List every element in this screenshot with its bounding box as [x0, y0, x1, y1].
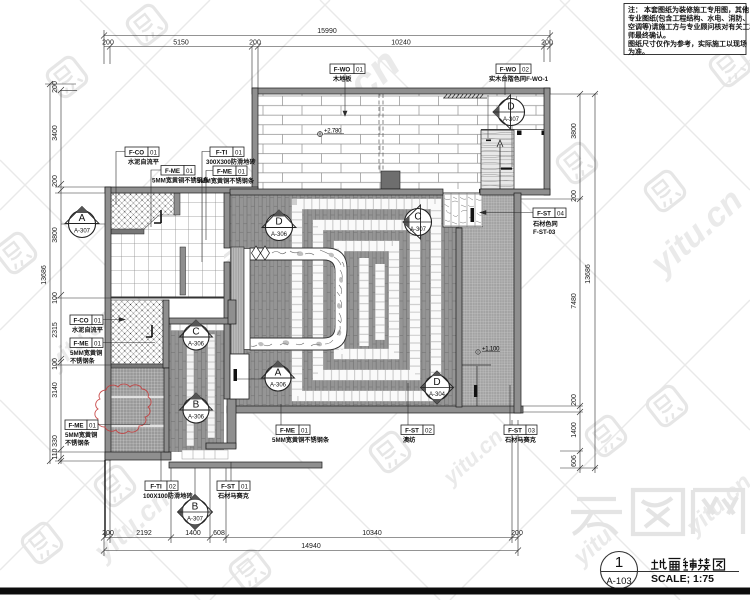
- svg-text:A-307: A-307: [503, 117, 520, 123]
- svg-text:01: 01: [238, 169, 245, 176]
- svg-text:200: 200: [571, 394, 578, 406]
- svg-text:A-307: A-307: [74, 229, 91, 235]
- svg-text:F-TI: F-TI: [216, 150, 228, 157]
- svg-text:5150: 5150: [173, 40, 189, 47]
- svg-text:D: D: [433, 377, 440, 388]
- svg-text:13686: 13686: [41, 265, 48, 285]
- svg-text:200: 200: [102, 40, 114, 47]
- svg-text:200: 200: [571, 190, 578, 202]
- svg-text:A-307: A-307: [187, 517, 204, 523]
- svg-text:03: 03: [528, 428, 535, 435]
- svg-text:200: 200: [52, 81, 59, 93]
- svg-text:B: B: [193, 400, 200, 411]
- svg-text:5MM宽黄铜: 5MM宽黄铜: [65, 431, 97, 439]
- svg-text:200: 200: [511, 530, 523, 537]
- svg-text:木地板: 木地板: [332, 75, 352, 83]
- svg-text:F-ME: F-ME: [165, 168, 180, 175]
- svg-text:师最终确认。: 师最终确认。: [628, 31, 670, 40]
- svg-text:606: 606: [571, 455, 578, 467]
- svg-text:F-ST: F-ST: [221, 484, 235, 491]
- svg-text:10240: 10240: [391, 40, 411, 47]
- svg-text:14940: 14940: [301, 543, 321, 550]
- svg-text:3140: 3140: [52, 382, 59, 398]
- svg-text:01: 01: [150, 150, 157, 157]
- svg-text:F-ME: F-ME: [280, 428, 295, 435]
- svg-text:F-WO: F-WO: [334, 67, 351, 74]
- svg-text:2192: 2192: [136, 530, 152, 537]
- svg-text:13686: 13686: [585, 264, 592, 284]
- svg-text:300X300防滑地砖: 300X300防滑地砖: [206, 158, 256, 166]
- svg-text:B: B: [192, 502, 199, 513]
- svg-text:5MM宽黄铜不锈钢条: 5MM宽黄铜不锈钢条: [197, 177, 255, 185]
- svg-text:石材马赛克: 石材马赛克: [504, 436, 537, 444]
- svg-text:F-CO: F-CO: [129, 150, 144, 157]
- svg-text:A-306: A-306: [271, 232, 288, 238]
- svg-text:实木台階色同F-WO-1: 实木台階色同F-WO-1: [489, 75, 549, 83]
- svg-text:F-CO: F-CO: [73, 318, 88, 325]
- svg-text:专业图纸(包含工程结构、水电、消防、: 专业图纸(包含工程结构、水电、消防、: [628, 14, 749, 23]
- svg-text:A-306: A-306: [188, 415, 205, 421]
- svg-text:04: 04: [557, 211, 564, 218]
- svg-text:01: 01: [94, 318, 101, 325]
- svg-text:C: C: [414, 212, 421, 223]
- svg-text:为准。: 为准。: [628, 47, 649, 56]
- svg-text:石材色同: 石材色同: [532, 220, 558, 228]
- svg-text:7480: 7480: [571, 293, 578, 309]
- svg-text:F-ST: F-ST: [537, 211, 551, 218]
- svg-text:100: 100: [52, 358, 59, 370]
- svg-text:330: 330: [52, 435, 59, 447]
- svg-text:5MM宽黄铜不锈钢条: 5MM宽黄铜不锈钢条: [272, 436, 330, 444]
- svg-text:F-ST-03: F-ST-03: [533, 229, 556, 236]
- svg-text:F-ST: F-ST: [405, 428, 419, 435]
- svg-text:不锈钢条: 不锈钢条: [65, 439, 91, 447]
- svg-text:01: 01: [235, 150, 242, 157]
- svg-text:F-ME: F-ME: [68, 423, 83, 430]
- svg-text:2315: 2315: [52, 322, 59, 338]
- svg-text:200: 200: [52, 175, 59, 187]
- svg-text:3800: 3800: [52, 227, 59, 243]
- svg-text:01: 01: [301, 428, 308, 435]
- svg-text:1400: 1400: [571, 422, 578, 438]
- svg-text:水泥自流平: 水泥自流平: [72, 326, 104, 334]
- svg-text:10340: 10340: [362, 530, 382, 537]
- svg-text:01: 01: [356, 67, 363, 74]
- svg-text:100: 100: [52, 292, 59, 304]
- svg-text:100X100防滑地砖: 100X100防滑地砖: [143, 492, 193, 500]
- svg-text:图纸尺寸仅作为参考，实际施工以现场: 图纸尺寸仅作为参考，实际施工以现场: [628, 39, 747, 48]
- svg-text:水泥自流平: 水泥自流平: [128, 158, 160, 166]
- svg-text:A: A: [275, 368, 282, 379]
- svg-text:A-306: A-306: [270, 383, 287, 389]
- svg-text:5MM宽黄铜: 5MM宽黄铜: [70, 349, 102, 357]
- svg-text:3800: 3800: [571, 123, 578, 139]
- svg-text:A: A: [79, 213, 86, 224]
- svg-text:01: 01: [186, 168, 193, 175]
- svg-text:1400: 1400: [185, 530, 201, 537]
- svg-text:F-TI: F-TI: [150, 484, 162, 491]
- svg-text:C: C: [192, 327, 199, 338]
- svg-text:A-304: A-304: [429, 392, 446, 398]
- svg-text:A-306: A-306: [188, 342, 205, 348]
- svg-text:3400: 3400: [52, 125, 59, 141]
- svg-text:608: 608: [213, 530, 225, 537]
- svg-text:注： 本套图纸为装修施工专用图，其他: 注： 本套图纸为装修施工专用图，其他: [628, 5, 749, 14]
- svg-text:SCALE; 1:75: SCALE; 1:75: [651, 573, 714, 585]
- svg-text:01: 01: [89, 423, 96, 430]
- svg-text:02: 02: [522, 67, 529, 74]
- svg-text:F-ME: F-ME: [73, 341, 88, 348]
- svg-text:200: 200: [102, 530, 114, 537]
- svg-text:A-307: A-307: [410, 227, 427, 233]
- svg-text:D: D: [507, 102, 514, 113]
- svg-text:D: D: [275, 217, 282, 228]
- svg-text:200: 200: [249, 40, 261, 47]
- svg-text:15990: 15990: [317, 28, 337, 35]
- svg-text:F-ME: F-ME: [217, 169, 232, 176]
- svg-text:F-ST: F-ST: [508, 428, 522, 435]
- svg-text:不锈钢条: 不锈钢条: [70, 357, 96, 365]
- svg-text:110: 110: [52, 448, 59, 459]
- svg-text:01: 01: [94, 341, 101, 348]
- svg-text:02: 02: [425, 428, 432, 435]
- svg-text:02: 02: [169, 484, 176, 491]
- svg-text:01: 01: [241, 484, 248, 491]
- svg-text:F-WO: F-WO: [500, 67, 517, 74]
- svg-text:空调等)请施工方与专业顾问核对有关工程: 空调等)请施工方与专业顾问核对有关工程: [628, 22, 750, 31]
- svg-text:A-103: A-103: [606, 576, 631, 587]
- svg-text:1: 1: [615, 554, 623, 571]
- svg-text:石材马赛克: 石材马赛克: [217, 492, 250, 500]
- svg-text:澳纺: 澳纺: [403, 436, 416, 444]
- svg-text:200: 200: [541, 40, 553, 47]
